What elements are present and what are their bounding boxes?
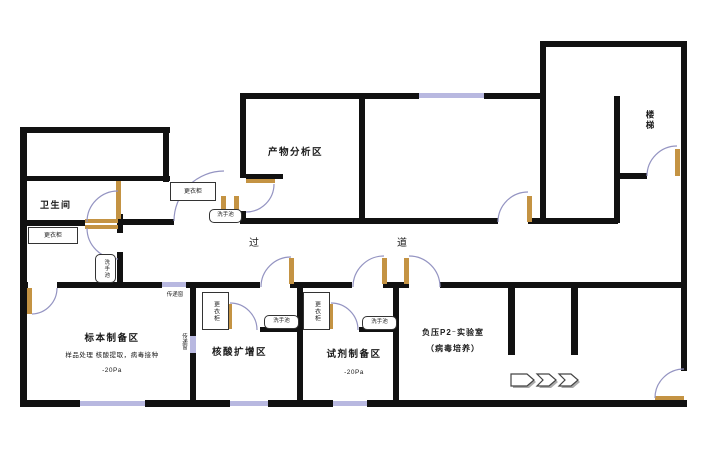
reagent-prep-title: 试剂制备区 — [326, 346, 381, 360]
wall — [20, 176, 170, 181]
wall — [393, 288, 399, 400]
p2-lab-subtitle: （病毒培养） — [426, 343, 480, 354]
door-leaf — [289, 258, 294, 284]
room-label-p2-lab: 负压P2⁻实验室 （病毒培养） — [403, 327, 503, 354]
wall — [440, 282, 687, 288]
wall — [268, 400, 333, 407]
wall — [123, 219, 174, 225]
door-arc — [261, 257, 291, 287]
wardrobe-label: 更衣柜 — [314, 301, 320, 322]
door-arc — [655, 369, 684, 398]
sink-box: 洗手池 — [209, 209, 242, 223]
sink-box: 洗手池 — [264, 315, 299, 329]
room-label-stairwell: 楼梯 — [644, 110, 656, 131]
wall — [620, 173, 647, 179]
door-arc — [246, 184, 274, 212]
wall — [484, 93, 540, 99]
specimen-prep-desc: 样品处理 核酸提取，病毒接种 — [65, 349, 158, 359]
door-arc — [87, 191, 118, 222]
room-label-product-analysis: 产物分析区 — [268, 144, 323, 158]
door-leaf — [85, 219, 118, 223]
door-arc — [331, 303, 358, 330]
wardrobe-box: 更衣柜 — [170, 182, 216, 201]
wardrobe-box: 更衣柜 — [303, 292, 330, 330]
wall — [163, 127, 169, 182]
sink-label: 洗手池 — [217, 213, 234, 219]
wall — [240, 93, 246, 178]
door-arc — [498, 192, 528, 222]
sink-box: 洗手池 — [95, 254, 116, 283]
wall — [614, 96, 620, 223]
wall — [20, 220, 85, 226]
wardrobe-label: 更衣柜 — [44, 233, 62, 239]
door-leaf — [85, 225, 118, 229]
arrow-icon — [511, 374, 534, 386]
wardrobe-box: 更衣柜 — [202, 292, 229, 330]
door-leaf — [116, 181, 121, 219]
pass-window-label: 传递窗 — [155, 290, 195, 298]
door-arc — [32, 288, 57, 314]
door-leaf — [527, 196, 532, 222]
window — [80, 401, 145, 406]
door-leaf — [382, 258, 387, 284]
door-arc — [230, 303, 257, 330]
wall — [240, 93, 419, 99]
p2-lab-title: 负压P2⁻实验室 — [422, 327, 484, 338]
sink-label: 洗手池 — [103, 259, 109, 279]
wall — [240, 218, 498, 224]
wall — [508, 288, 515, 355]
sink-box: 洗手池 — [362, 316, 397, 330]
door-arc — [409, 256, 440, 287]
pass-window — [162, 282, 186, 287]
wall — [186, 282, 260, 288]
wall — [145, 400, 230, 407]
reagent-prep-pressure: -20Pa — [344, 369, 364, 376]
wall — [540, 41, 546, 224]
specimen-prep-pressure: -20Pa — [102, 367, 122, 374]
wall — [540, 41, 687, 47]
room-label-toilet: 卫生间 — [40, 198, 72, 211]
room-label-reagent-prep: 试剂制备区 -20Pa — [315, 346, 393, 376]
wall — [20, 400, 80, 407]
door-leaf — [246, 179, 275, 183]
wall — [20, 127, 27, 405]
wall — [571, 288, 578, 355]
sink-label: 洗手池 — [371, 320, 388, 326]
wardrobe-box: 更衣柜 — [28, 227, 78, 244]
sink-label: 洗手池 — [273, 319, 290, 325]
door-arc — [353, 256, 384, 287]
wardrobe-label: 更衣柜 — [184, 189, 202, 195]
window — [230, 401, 268, 406]
door-leaf — [27, 288, 32, 314]
wall — [681, 41, 687, 371]
floor-plan: 更衣柜 更衣柜 更衣柜 更衣柜 洗手池 洗手池 洗手池 洗手池 传递窗 传递窗 … — [0, 0, 707, 450]
flow-arrows — [511, 374, 580, 388]
arrow-icon — [559, 374, 578, 386]
window — [333, 401, 367, 406]
specimen-prep-title: 标本制备区 — [84, 330, 139, 344]
corridor-label-left: 过 — [249, 234, 259, 249]
room-label-nucleic-amplification: 核酸扩增区 — [212, 344, 267, 358]
wall — [20, 127, 170, 133]
window — [419, 93, 484, 98]
door-arc — [647, 146, 677, 176]
wardrobe-label: 更衣柜 — [213, 301, 219, 322]
door-leaf — [404, 258, 409, 284]
door-leaf — [675, 149, 680, 176]
wall — [359, 99, 365, 223]
room-label-specimen-prep: 标本制备区 样品处理 核酸提取，病毒接种 -20Pa — [37, 330, 187, 374]
door-leaf — [655, 396, 684, 400]
pass-window — [190, 336, 196, 353]
arrow-icon — [537, 374, 556, 386]
corridor-label-right: 道 — [397, 234, 407, 249]
wall — [367, 400, 687, 407]
